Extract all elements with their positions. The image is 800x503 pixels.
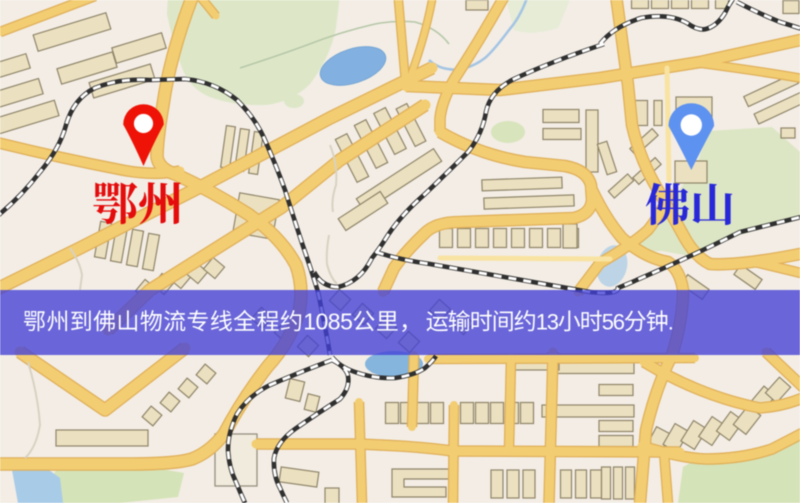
svg-text:5: 5 xyxy=(340,309,353,335)
svg-text:1: 1 xyxy=(303,309,316,335)
svg-text:8: 8 xyxy=(328,309,341,335)
svg-text:.: . xyxy=(668,310,674,335)
svg-text:0: 0 xyxy=(316,309,329,335)
svg-text:3: 3 xyxy=(547,310,559,335)
svg-text:6: 6 xyxy=(613,310,625,335)
